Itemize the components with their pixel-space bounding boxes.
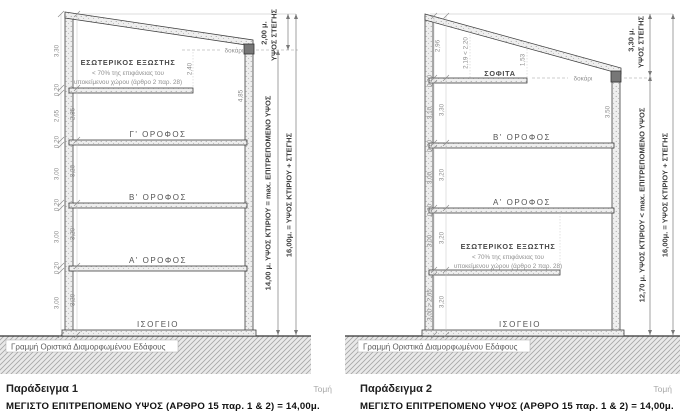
- dim-f2-slab: 0,20: [427, 74, 434, 87]
- dim-f1-clear: 3,00: [54, 230, 61, 243]
- dim-loft-clear: 2,40: [187, 62, 194, 75]
- height-annotations: 3,30 μ. ΥΨΟΣ ΣΤΕΓΗΣ 12,70 μ. ΥΨΟΣ ΚΤΙΡΙΟ…: [627, 14, 676, 335]
- floor0-label: ΙΣΟΓΕΙΟ: [499, 320, 541, 329]
- attic-label: ΣΟΦΙΤΑ: [484, 69, 515, 78]
- dim-f2-slab: 0,20: [54, 135, 61, 148]
- dim-f3-clear: 2,65: [54, 109, 61, 122]
- example2-section-drawing: Γραμμή Οριστικά Διαμορφωμένου Εδάφους: [340, 0, 680, 376]
- example1-caption: ΜΕΓΙΣΤΟ ΕΠΙΤΡΕΠΟΜΕΝΟ ΥΨΟΣ (ΑΡΘΡΟ 15 παρ.…: [0, 401, 340, 412]
- dim-ground-upper-slab: 0,20: [427, 203, 434, 216]
- building-height-label: 12,70 μ. ΥΨΟΣ ΚΤΙΡΙΟΥ < max. ΕΠΙΤΡΕΠΟΜΕΝ…: [638, 107, 647, 302]
- loft-title: ΕΣΩΤΕΡΙΚΟΣ ΕΞΩΣΤΗΣ: [81, 58, 176, 67]
- dim-f1-slab: 0,20: [54, 198, 61, 211]
- example2-caption: ΜΕΓΙΣΤΟ ΕΠΙΤΡΕΠΟΜΕΝΟ ΥΨΟΣ (ΑΡΘΡΟ 15 παρ.…: [340, 401, 680, 412]
- total-height-label: 16,00μ. = ΥΨΟΣ ΚΤΙΡΙΟΥ + ΣΤΕΓΗΣ: [661, 132, 670, 257]
- dim-f3-slab: 0,20: [54, 83, 61, 96]
- dim-f1-clear: 3,00: [427, 171, 434, 184]
- section-label: Τομή: [313, 384, 340, 394]
- dim-f1-total: 3,20: [70, 227, 77, 240]
- dim-f0-clear: 3,00: [54, 296, 61, 309]
- beam-label: δοκάρι: [225, 47, 244, 55]
- roof-beam: [611, 71, 621, 82]
- roof-height-label: ΥΨΟΣ ΣΤΕΓΗΣ: [637, 16, 646, 68]
- sloped-roof: [65, 12, 253, 46]
- example1-panel: Γραμμή Οριστικά Διαμορφωμένου Εδάφους: [0, 0, 340, 414]
- loft-note-2: υποκείμενου χώρου (άρθρο 2 παρ. 28): [454, 262, 562, 270]
- floor3-label: Γ' ΟΡΟΦΟΣ: [130, 130, 187, 139]
- dim-right-wall: 3,50: [605, 105, 612, 118]
- dim-top-floor-height: 3,30: [54, 44, 61, 57]
- loft-title: ΕΣΩΤΕΡΙΚΟΣ ΕΞΩΣΤΗΣ: [461, 242, 556, 251]
- dim-attic-right: 1,53: [520, 53, 527, 66]
- loft-slab: [69, 88, 193, 93]
- floor2-slab: [429, 143, 614, 148]
- loft-note-1: < 70% της επιφάνειας του: [472, 253, 545, 261]
- loft-slab: [429, 270, 560, 275]
- floor1-label: Α' ΟΡΟΦΟΣ: [129, 256, 187, 265]
- floor2-label: Β' ΟΡΟΦΟΣ: [129, 193, 187, 202]
- dim-ground-upper-clear: 3,00: [427, 234, 434, 247]
- dim-f1-total: 3,20: [439, 168, 446, 181]
- dim-f0-total: 3,20: [70, 293, 77, 306]
- example1-section-drawing: Γραμμή Οριστικά Διαμορφωμένου Εδάφους: [0, 0, 340, 376]
- example2-title: Παράδειγμα 2: [360, 383, 432, 395]
- example1-title: Παράδειγμα 1: [6, 383, 78, 395]
- dim-ground-upper-total: 3,20: [439, 231, 446, 244]
- ground-band: Γραμμή Οριστικά Διαμορφωμένου Εδάφους: [0, 336, 311, 374]
- roof-height-value: 2,00 μ.: [260, 21, 269, 44]
- dim-f3-total: 2,85: [70, 107, 77, 120]
- roof-height-value: 3,30 μ.: [627, 28, 636, 51]
- dim-ground-lower-total: 3,20: [439, 295, 446, 308]
- roof-beam: [244, 44, 254, 54]
- floor0-label: ΙΣΟΓΕΙΟ: [137, 320, 179, 329]
- floor2-label: Β' ΟΡΟΦΟΣ: [493, 133, 551, 142]
- example2-panel: Γραμμή Οριστικά Διαμορφωμένου Εδάφους: [340, 0, 680, 414]
- floor1-slab: [69, 266, 247, 271]
- dim-attic-mid: 2,19 < 2,20: [463, 37, 470, 69]
- dim-f2-total: 3,30: [439, 103, 446, 116]
- floor2-slab: [69, 203, 247, 208]
- floor3-slab: [69, 140, 247, 145]
- floor1-slab: [429, 208, 614, 213]
- dim-f2-clear: 3,00: [54, 167, 61, 180]
- floor1-label: Α' ΟΡΟΦΟΣ: [493, 198, 551, 207]
- section-label: Τομή: [653, 384, 680, 394]
- building-height-label: 14,00 μ. ΥΨΟΣ ΚΤΙΡΙΟΥ = max. ΕΠΙΤΡΕΠΟΜΕΝ…: [264, 95, 273, 290]
- beam-label: δοκάρι: [574, 75, 593, 83]
- dim-attic-left: 2,96: [435, 39, 442, 52]
- base-slab: [62, 330, 256, 336]
- height-annotations: 2,00 μ. ΥΨΟΣ ΣΤΕΓΗΣ 14,00 μ. ΥΨΟΣ ΚΤΙΡΙΟ…: [260, 9, 299, 335]
- loft-note-2: υποκείμενου χώρου (άρθρο 2 παρ. 28): [74, 78, 182, 86]
- drawing-sheet: Γραμμή Οριστικά Διαμορφωμένου Εδάφους: [0, 0, 680, 414]
- dim-right-wall: 4,85: [238, 89, 245, 102]
- dim-f1-slab: 0,20: [427, 139, 434, 152]
- dim-f0-slab: 0,20: [54, 261, 61, 274]
- dim-f2-total: 3,20: [70, 164, 77, 177]
- building-structure: [422, 14, 673, 336]
- loft-note-1: < 70% της επιφάνειας του: [92, 69, 165, 77]
- dim-ground-lower-clear: 3,00 > 2,65: [427, 289, 434, 321]
- right-wall: [245, 53, 253, 335]
- ground-line-label: Γραμμή Οριστικά Διαμορφωμένου Εδάφους: [363, 343, 518, 352]
- ground-band: Γραμμή Οριστικά Διαμορφωμένου Εδάφους: [345, 336, 680, 374]
- ground-line-label: Γραμμή Οριστικά Διαμορφωμένου Εδάφους: [11, 343, 166, 352]
- dim-f2-clear: 3,10: [427, 106, 434, 119]
- base-slab: [422, 330, 624, 336]
- total-height-label: 16,00μ. = ΥΨΟΣ ΚΤΙΡΙΟΥ + ΣΤΕΓΗΣ: [285, 132, 294, 257]
